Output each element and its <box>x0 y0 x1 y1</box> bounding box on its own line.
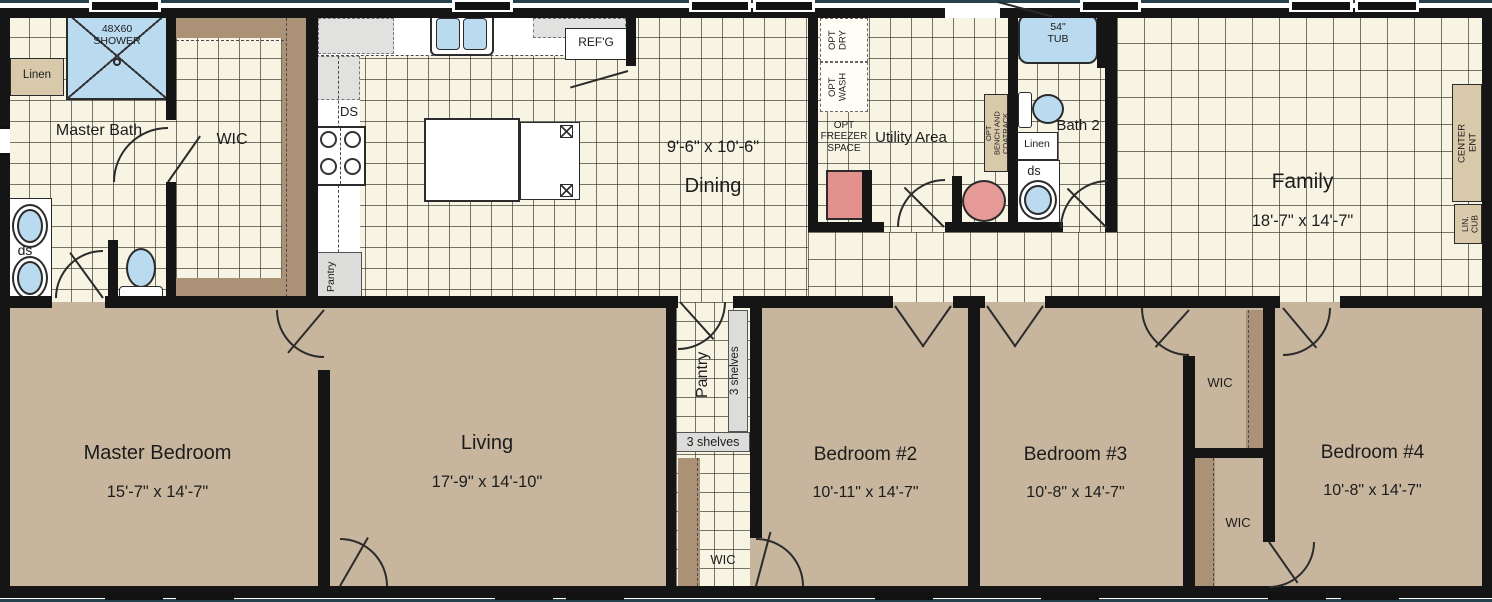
burner-icon <box>320 158 337 175</box>
wall <box>1008 18 1018 232</box>
room-name: Master Bedroom <box>40 442 275 465</box>
wall <box>808 222 884 232</box>
wall <box>306 18 318 302</box>
room-name: Bedroom #2 <box>768 444 963 465</box>
window-glass <box>1341 592 1399 600</box>
wic-hall-label: WIC <box>700 553 746 568</box>
room-label-master-bath: Master Bath <box>55 122 143 140</box>
back-door-opening <box>945 8 1000 18</box>
room-name: Bedroom #4 <box>1275 442 1470 463</box>
pantry-shelves-bottom-label: 3 shelves <box>676 435 750 449</box>
stove-divider <box>340 128 341 184</box>
closet-rod-line <box>1213 458 1214 586</box>
wall <box>166 18 176 120</box>
window-glass <box>176 592 234 600</box>
sink-basin <box>463 18 487 50</box>
wall <box>166 182 176 302</box>
wall <box>1183 356 1195 586</box>
window-glass <box>875 592 933 600</box>
toilet-tank <box>1018 92 1032 128</box>
wall <box>808 18 818 232</box>
wall <box>750 302 762 538</box>
window-glass <box>566 592 624 600</box>
upper-cabinet <box>318 18 394 54</box>
closet-rod-line <box>176 40 284 41</box>
wall <box>1045 296 1280 308</box>
window-glass <box>92 2 158 10</box>
wall <box>945 222 1063 232</box>
pantry-shelves-side-label: 3 shelves <box>729 315 747 427</box>
wall <box>666 302 676 586</box>
burner-icon <box>344 131 361 148</box>
window-glass <box>1292 2 1350 10</box>
opt-bench-label: OPT BENCH AND COATRACK <box>985 97 1007 169</box>
room-label-bedroom4: Bedroom #4 10'-8" x 14'-7" <box>1275 424 1470 518</box>
sink <box>17 261 43 295</box>
double-sink-label: ds <box>1022 164 1046 178</box>
pantry-label: Pantry <box>694 335 718 415</box>
wic-bedroom4-label: WIC <box>1215 516 1261 531</box>
chair-icon <box>560 184 573 197</box>
ent-center-label: ENT CENTER <box>1455 90 1479 196</box>
closet-rod-line <box>1248 310 1249 448</box>
refrigerator-label: REF'G <box>565 36 627 50</box>
cub-lin-label: CUB LIN. <box>1456 207 1480 241</box>
closet-rod <box>1195 458 1215 586</box>
wic-bedroom3-label: WIC <box>1197 376 1243 391</box>
shower-drain-icon <box>113 58 121 66</box>
window-glass <box>1041 592 1099 600</box>
room-label-bath2: Bath 2 <box>1038 118 1118 135</box>
room-label-dining: 9'-6" x 10'-6" Dining <box>623 120 803 215</box>
sink-basin <box>436 18 460 50</box>
wall <box>0 296 52 308</box>
tile-floor-hall <box>808 232 1117 302</box>
wall <box>108 240 118 298</box>
room-name: Dining <box>623 175 803 198</box>
window-glass <box>495 592 553 600</box>
wall <box>952 176 962 232</box>
water-heater <box>826 170 864 220</box>
kitchen-pantry-label: Pantry <box>326 256 352 298</box>
wall <box>105 296 678 308</box>
wall <box>1340 296 1492 308</box>
linen-label: Linen <box>1016 139 1058 151</box>
closet-rod-line <box>286 18 287 302</box>
tub-label: 54" TUB <box>1028 22 1088 46</box>
kitchen-ds-label: DS <box>333 105 365 120</box>
opt-dry-label: OPT DRY <box>828 22 860 58</box>
burner-icon <box>320 131 337 148</box>
room-size: 15'-7" x 14'-7" <box>40 483 275 502</box>
room-size: 18'-7" x 14'-7" <box>1215 212 1390 231</box>
room-label-living: Living 17'-9" x 14'-10" <box>392 414 582 509</box>
window-glass <box>1268 592 1326 600</box>
window-glass <box>756 2 812 10</box>
chair-icon <box>560 125 573 138</box>
window-glass <box>455 2 510 10</box>
double-sink-label: ds <box>8 243 42 259</box>
utility-basin <box>962 180 1006 222</box>
floor-plan: 48X60 SHOWER Linen ds REF'G DS Pantry OP… <box>0 0 1492 602</box>
opt-wash-label: OPT WASH <box>828 68 860 106</box>
window-glass <box>1083 2 1138 10</box>
closet-rod-line <box>697 458 698 586</box>
room-size: 10'-8" x 14'-7" <box>978 484 1173 502</box>
room-size: 17'-9" x 14'-10" <box>392 473 582 492</box>
wall <box>0 156 10 598</box>
shower-label: 48X60 SHOWER <box>76 24 158 48</box>
room-label-family: Family 18'-7" x 14'-7" <box>1215 152 1390 249</box>
room-size: 9'-6" x 10'-6" <box>623 138 803 157</box>
room-label-wic-master: WIC <box>200 131 264 149</box>
room-name: Bedroom #3 <box>978 444 1173 465</box>
sink <box>1024 185 1052 215</box>
toilet <box>126 248 156 288</box>
window-glass <box>692 2 748 10</box>
room-label-bedroom2: Bedroom #2 10'-11" x 14'-7" <box>768 426 963 520</box>
window-glass <box>105 592 163 600</box>
window <box>0 126 10 156</box>
room-size: 10'-11" x 14'-7" <box>768 484 963 502</box>
linen-label: Linen <box>10 69 64 82</box>
room-size: 10'-8" x 14'-7" <box>1275 482 1470 500</box>
room-label-bedroom3: Bedroom #3 10'-8" x 14'-7" <box>978 426 1173 520</box>
burner-icon <box>344 158 361 175</box>
wall <box>1263 302 1275 542</box>
kitchen-island <box>424 118 520 202</box>
room-label-master-bedroom: Master Bedroom 15'-7" x 14'-7" <box>40 424 275 519</box>
wall <box>1183 448 1275 458</box>
room-name: Family <box>1215 170 1390 194</box>
wall <box>626 18 636 66</box>
room-name: Living <box>392 432 582 455</box>
wall <box>0 8 10 126</box>
room-label-utility: Utility Area <box>852 130 970 147</box>
window-glass <box>1358 2 1416 10</box>
sink <box>17 209 43 243</box>
wall <box>318 370 330 586</box>
